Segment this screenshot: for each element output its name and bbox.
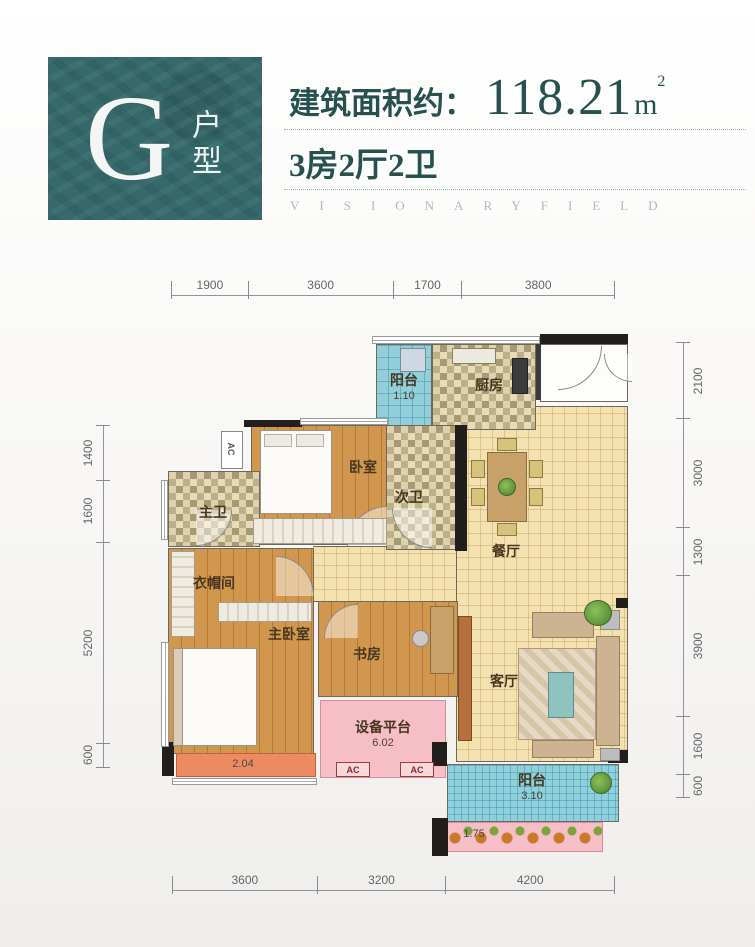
wall-segment <box>455 425 467 551</box>
dimension-value: 2100 <box>691 367 705 394</box>
dimension-segment: 3000 <box>676 418 690 527</box>
chair <box>471 488 485 506</box>
room-area: 3.10 <box>521 790 542 802</box>
dimension-value: 1300 <box>691 538 705 565</box>
room-area: 1.10 <box>393 390 414 402</box>
room-name: 衣帽间 <box>193 573 235 593</box>
label-dining: 餐厅 <box>492 541 520 561</box>
dimension-segment: 1900 <box>171 281 248 299</box>
room-name: 次卫 <box>395 487 423 507</box>
chair <box>497 523 517 536</box>
dimension-segment: 1300 <box>676 527 690 575</box>
dimension-segment: 1600 <box>96 480 110 542</box>
dimension-segment: 3600 <box>172 876 317 894</box>
label-master-bedroom: 主卧室 <box>268 624 310 644</box>
label-bedroom: 卧室 <box>349 457 377 477</box>
dimension-ruler-bottom: 360032004200 <box>172 876 615 894</box>
wall-segment <box>162 742 174 776</box>
dimension-value: 3000 <box>691 460 705 487</box>
label-flower-bed: 1.75 <box>463 828 484 840</box>
dimension-value: 3200 <box>368 873 395 887</box>
chair <box>497 438 517 451</box>
master-bed <box>173 648 257 746</box>
dimension-value: 1700 <box>414 278 441 292</box>
room-name: 客厅 <box>490 671 518 691</box>
room-name: 阳台 <box>518 770 546 790</box>
chair <box>529 488 543 506</box>
dimension-value: 5200 <box>81 630 95 657</box>
label-kitchen: 厨房 <box>475 375 503 395</box>
dimension-segment: 3600 <box>248 281 393 299</box>
headboard <box>173 648 183 746</box>
kitchen-sink <box>452 348 496 364</box>
dimension-value: 3600 <box>231 873 258 887</box>
closet <box>171 551 195 637</box>
ac-unit: AC <box>336 762 370 777</box>
dimension-ruler-left: 140016005200600 <box>96 425 110 768</box>
chair <box>529 460 543 478</box>
floorplan-page: { "header": { "unit_letter": "G", "unit_… <box>0 0 755 947</box>
dimension-segment: 4200 <box>445 876 615 894</box>
tv-cabinet <box>458 616 472 741</box>
wall-segment <box>536 344 541 400</box>
sofa <box>532 740 594 758</box>
unit-suffix-label: 户型 <box>181 109 225 181</box>
window <box>161 642 169 747</box>
dimension-segment: 1600 <box>676 716 690 774</box>
room-name: 阳台 <box>390 370 418 390</box>
building-area-line: 建筑面积约： 118.21 m2 <box>289 68 665 127</box>
room-name: 厨房 <box>475 375 503 395</box>
dimension-value: 600 <box>691 776 705 796</box>
dimension-segment: 1400 <box>96 425 110 480</box>
unit-type-badge: G 户型 <box>48 57 262 220</box>
desk <box>430 606 454 674</box>
rooms-summary: 3房2厅2卫 <box>289 138 438 186</box>
dimension-value: 4200 <box>517 873 544 887</box>
dimension-ruler-right: 21003000130039001600600 <box>676 342 690 798</box>
divider-dotted-bottom <box>284 189 746 190</box>
desk-chair <box>412 630 429 647</box>
dimension-segment: 1700 <box>393 281 462 299</box>
label-balcony-bottom: 阳台 3.10 <box>518 770 546 802</box>
label-equipment-platform: 设备平台 6.02 <box>355 717 411 749</box>
area-value: 118.21 <box>485 68 632 127</box>
dimension-segment: 3800 <box>461 281 615 299</box>
label-master-bath: 主卫 <box>199 502 227 522</box>
room-name: 设备平台 <box>355 717 411 737</box>
dimension-segment: 3900 <box>676 575 690 716</box>
label-bay-window: 2.04 <box>232 758 253 770</box>
dimension-value: 1600 <box>81 498 95 525</box>
dimension-value: 3800 <box>525 278 552 292</box>
label-ac-platform: AC <box>226 443 236 456</box>
wall-segment <box>540 334 628 344</box>
room-name: 书房 <box>353 644 381 664</box>
wall-segment <box>432 818 448 856</box>
dimension-segment: 3200 <box>317 876 446 894</box>
room-area: 1.75 <box>463 828 484 840</box>
label-second-bath: 次卫 <box>395 487 423 507</box>
plant <box>584 600 612 626</box>
washing-machine <box>400 348 426 372</box>
dimension-ruler-top: 1900360017003800 <box>171 281 615 299</box>
window <box>300 418 388 425</box>
area-unit: m2 <box>634 73 665 122</box>
pillow <box>296 434 324 447</box>
window <box>161 480 168 540</box>
window <box>172 778 317 785</box>
room-area: 6.02 <box>372 737 393 749</box>
dimension-value: 1900 <box>197 278 224 292</box>
room-name: 卧室 <box>349 457 377 477</box>
wall-segment <box>616 598 628 608</box>
hallway-floor <box>313 546 457 602</box>
room-name: 主卫 <box>199 502 227 522</box>
dimension-value: 3900 <box>691 633 705 660</box>
plant <box>498 478 516 496</box>
dimension-segment: 600 <box>676 774 690 798</box>
window <box>372 336 540 344</box>
dimension-segment: 2100 <box>676 342 690 418</box>
wall-segment <box>432 742 447 766</box>
pillow <box>264 434 292 447</box>
area-unit-sup: 2 <box>657 73 665 90</box>
label-living: 客厅 <box>490 671 518 691</box>
ac-text: AC <box>411 765 424 775</box>
ac-unit: AC <box>400 762 434 777</box>
watermark-text: VISIONARYFIELD <box>290 198 755 214</box>
area-unit-base: m <box>634 88 657 121</box>
coffee-table <box>548 672 574 718</box>
unit-letter: G <box>85 78 173 200</box>
room-name: 餐厅 <box>492 541 520 561</box>
dimension-value: 1600 <box>691 732 705 759</box>
chair <box>471 460 485 478</box>
divider-dotted-top <box>284 129 746 130</box>
ac-text: AC <box>347 765 360 775</box>
dresser <box>218 602 312 622</box>
wall-segment <box>244 420 302 427</box>
area-prefix: 建筑面积约： <box>289 78 475 123</box>
dimension-value: 600 <box>81 745 95 765</box>
dimension-segment: 5200 <box>96 542 110 743</box>
dimension-value: 3600 <box>307 278 334 292</box>
dimension-value: 1400 <box>81 440 95 467</box>
sofa <box>596 636 620 746</box>
ac-text: AC <box>226 443 236 456</box>
wardrobe <box>253 518 387 544</box>
dimension-segment: 600 <box>96 743 110 768</box>
room-name: 主卧室 <box>268 624 310 644</box>
room-area: 2.04 <box>232 758 253 770</box>
label-study: 书房 <box>353 644 381 664</box>
label-cloakroom: 衣帽间 <box>193 573 235 593</box>
side-table <box>600 748 620 761</box>
stove <box>512 358 528 394</box>
plant <box>590 772 612 794</box>
label-balcony-top: 阳台 1.10 <box>390 370 418 402</box>
